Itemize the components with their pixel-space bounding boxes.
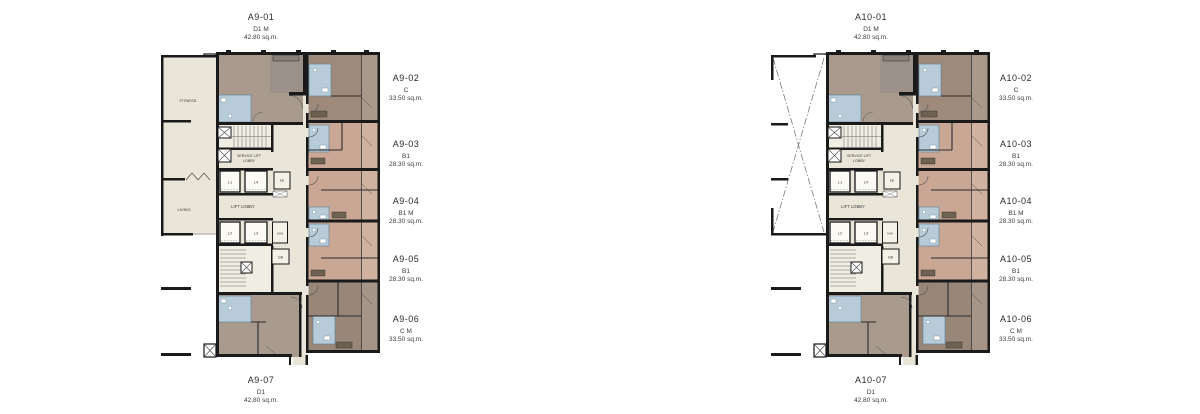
unit-area: 33.50 sq.m. — [389, 336, 423, 344]
unit-number: A9-04 — [389, 196, 423, 206]
unit-number: A9-07 — [244, 375, 278, 385]
callout-a10-05: A10-05 B1 28.30 sq.m. — [999, 254, 1033, 284]
unit-type: D1 M — [244, 26, 278, 34]
unit-area: 33.50 sq.m. — [999, 336, 1033, 344]
unit-area: 28.30 sq.m. — [999, 161, 1033, 169]
unit-area: 28.30 sq.m. — [999, 276, 1033, 284]
unit-number: A9-02 — [389, 73, 423, 83]
unit-number: A10-02 — [999, 73, 1033, 83]
callout-a9-01: A9-01 D1 M 42.80 sq.m. — [244, 12, 278, 42]
unit-number: A10-07 — [854, 375, 888, 385]
unit-type: B1 — [999, 268, 1033, 276]
callout-a10-06: A10-06 C M 33.50 sq.m. — [999, 314, 1033, 344]
unit-number: A10-04 — [999, 196, 1033, 206]
callout-a9-05: A9-05 B1 28.30 sq.m. — [389, 254, 423, 284]
unit-type: C M — [389, 328, 423, 336]
callout-a9-07: A9-07 D1 42.80 sq.m. — [244, 375, 278, 405]
unit-area: 33.50 sq.m. — [999, 95, 1033, 103]
unit-area: 28.30 sq.m. — [999, 218, 1033, 226]
unit-area: 33.50 sq.m. — [389, 95, 423, 103]
floorplan-a9 — [158, 50, 383, 370]
unit-type: C M — [999, 328, 1033, 336]
unit-type: C — [999, 87, 1033, 95]
unit-area: 28.30 sq.m. — [389, 161, 423, 169]
unit-area: 42.80 sq.m. — [244, 34, 278, 42]
unit-type: B1 M — [389, 210, 423, 218]
unit-type: D1 — [854, 389, 888, 397]
callout-a10-04: A10-04 B1 M 28.30 sq.m. — [999, 196, 1033, 226]
callout-a10-02: A10-02 C 33.50 sq.m. — [999, 73, 1033, 103]
unit-type: B1 — [389, 153, 423, 161]
unit-type: D1 M — [854, 26, 888, 34]
floorplan-a10 — [768, 50, 993, 370]
callout-a10-01: A10-01 D1 M 42.80 sq.m. — [854, 12, 888, 42]
unit-number: A9-03 — [389, 139, 423, 149]
unit-number: A10-01 — [854, 12, 888, 22]
unit-number: A10-03 — [999, 139, 1033, 149]
floorplan-sheet: SERVICE LIFT LOBBY LIFT LOBBY L1 L4 L2 L… — [0, 0, 1200, 414]
callout-a10-07: A10-07 D1 42.80 sq.m. — [854, 375, 888, 405]
unit-number: A10-05 — [999, 254, 1033, 264]
callout-a9-02: A9-02 C 33.50 sq.m. — [389, 73, 423, 103]
callout-a10-03: A10-03 B1 28.30 sq.m. — [999, 139, 1033, 169]
unit-type: D1 — [244, 389, 278, 397]
unit-number: A9-06 — [389, 314, 423, 324]
callout-a9-04: A9-04 B1 M 28.30 sq.m. — [389, 196, 423, 226]
unit-type: B1 — [389, 268, 423, 276]
unit-type: B1 M — [999, 210, 1033, 218]
unit-area: 28.30 sq.m. — [389, 276, 423, 284]
unit-number: A9-05 — [389, 254, 423, 264]
unit-type: B1 — [999, 153, 1033, 161]
unit-type: C — [389, 87, 423, 95]
unit-number: A9-01 — [244, 12, 278, 22]
callout-a9-06: A9-06 C M 33.50 sq.m. — [389, 314, 423, 344]
callout-a9-03: A9-03 B1 28.30 sq.m. — [389, 139, 423, 169]
unit-area: 42.80 sq.m. — [854, 397, 888, 405]
unit-area: 42.80 sq.m. — [244, 397, 278, 405]
unit-area: 42.80 sq.m. — [854, 34, 888, 42]
unit-number: A10-06 — [999, 314, 1033, 324]
unit-area: 28.30 sq.m. — [389, 218, 423, 226]
